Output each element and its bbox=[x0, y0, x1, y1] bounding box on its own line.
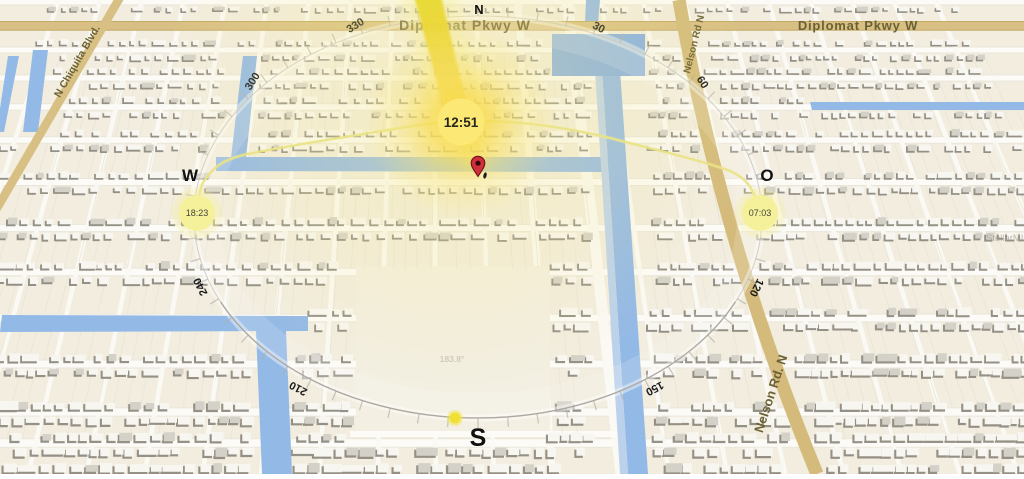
svg-text:12:51: 12:51 bbox=[444, 115, 479, 130]
svg-text:O: O bbox=[760, 166, 773, 185]
svg-text:W: W bbox=[182, 166, 199, 185]
svg-text:S: S bbox=[470, 424, 487, 452]
svg-text:07:03: 07:03 bbox=[749, 208, 772, 218]
svg-text:N: N bbox=[474, 2, 483, 17]
svg-text:18:23: 18:23 bbox=[186, 208, 209, 218]
svg-text:Diplomat Pkwy W: Diplomat Pkwy W bbox=[798, 18, 918, 33]
svg-text:StellarMLS: StellarMLS bbox=[986, 233, 1024, 244]
